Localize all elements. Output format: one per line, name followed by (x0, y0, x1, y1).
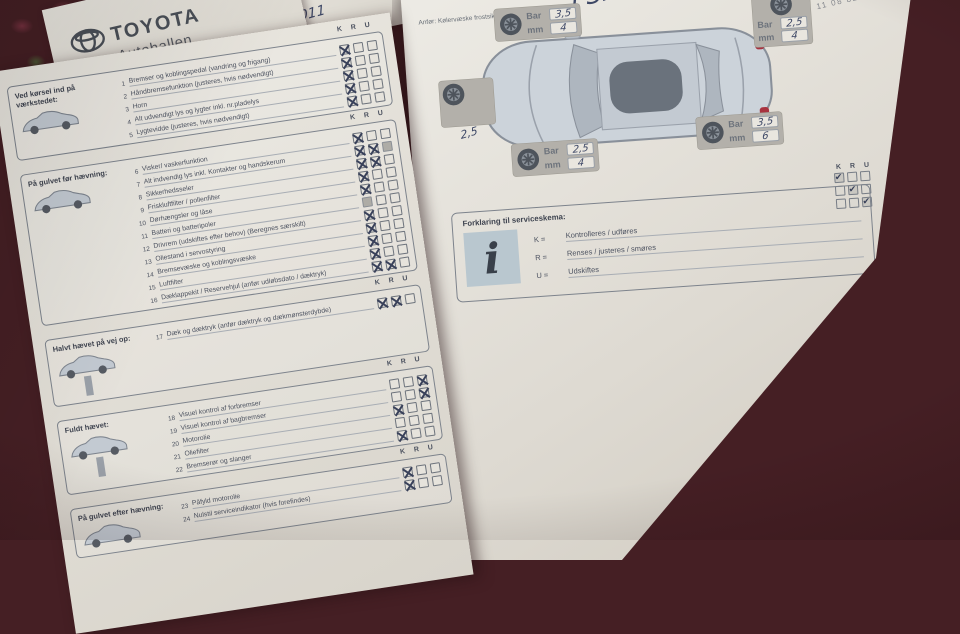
checkbox-k[interactable] (343, 70, 354, 81)
checkbox-u[interactable] (422, 413, 433, 424)
kru-column-label: K (831, 163, 845, 171)
checkbox-u[interactable] (395, 231, 406, 242)
checkbox-u[interactable] (419, 387, 430, 398)
checkbox-r[interactable] (407, 402, 418, 413)
checkbox-u[interactable] (404, 293, 415, 304)
checkbox-r[interactable] (370, 156, 381, 167)
checkbox-r[interactable] (409, 415, 420, 426)
checkbox-r[interactable] (360, 93, 371, 104)
checkbox-u[interactable] (432, 475, 443, 486)
bar-label: Bar (728, 118, 749, 129)
checkbox-r[interactable] (381, 233, 392, 244)
mm-value-field[interactable]: 4 (550, 21, 578, 35)
checkbox-r[interactable] (374, 181, 385, 192)
checkbox-k[interactable] (393, 404, 404, 415)
checkbox-u[interactable] (368, 53, 379, 64)
checkbox-k[interactable] (404, 480, 415, 491)
bar-value-field[interactable]: 2,5 (566, 142, 594, 156)
checkbox-k[interactable] (341, 57, 352, 68)
checkbox-k[interactable] (367, 235, 378, 246)
checkbox-k[interactable] (352, 132, 363, 143)
kru-column-label: U (373, 109, 388, 122)
checkbox-u[interactable] (387, 179, 398, 190)
item-number: 24 (175, 516, 191, 525)
tire-icon (515, 147, 541, 173)
kru-column-label: U (360, 21, 375, 34)
checkbox-k[interactable] (365, 222, 376, 233)
checkbox-u[interactable] (391, 205, 402, 216)
checkbox-u[interactable] (374, 91, 385, 102)
checkbox-k[interactable] (369, 248, 380, 259)
checkbox-r[interactable] (375, 194, 386, 205)
tirebox-top-right: Bar2,5 mm4 (751, 0, 813, 47)
checkbox-k[interactable] (347, 95, 358, 106)
checkbox-k[interactable] (339, 44, 350, 55)
checkbox-k[interactable] (356, 158, 367, 169)
checkbox-r[interactable] (383, 246, 394, 257)
checkbox-k[interactable] (391, 392, 402, 403)
checkbox-r[interactable] (366, 130, 377, 141)
tirebox-top-left: Bar3,5 mm4 (494, 4, 582, 42)
checkbox-r[interactable] (416, 465, 427, 476)
tire-icon (498, 12, 524, 38)
checkbox-k[interactable] (358, 171, 369, 182)
checkbox-u[interactable] (420, 400, 431, 411)
legend-key: U = (536, 269, 569, 280)
checkbox-r[interactable] (353, 42, 364, 53)
toyota-logo-icon (68, 25, 108, 56)
mm-value-field[interactable]: 4 (781, 29, 809, 43)
checkbox-u[interactable] (385, 166, 396, 177)
checkbox-u[interactable] (389, 192, 400, 203)
checkbox-r[interactable] (355, 55, 366, 66)
checkbox-u[interactable] (370, 66, 381, 77)
spare-wheel-box: 2,5 (439, 78, 496, 128)
bar-label: Bar (526, 10, 547, 21)
checkbox-k[interactable] (362, 196, 373, 207)
checkbox-u[interactable] (367, 40, 378, 51)
mm-label: mm (729, 132, 750, 143)
item-number: 16 (142, 297, 158, 306)
mm-label: mm (758, 32, 779, 43)
tire-icon (441, 80, 493, 123)
checkbox-r[interactable] (358, 80, 369, 91)
bar-value-field[interactable]: 2,5 (780, 16, 808, 30)
checkbox-u[interactable] (393, 218, 404, 229)
checkbox-r[interactable] (377, 207, 388, 218)
kru-column-label: U (423, 444, 438, 457)
checkbox-u[interactable] (382, 141, 393, 152)
service-checklist-page: KRUVed kørsel ind på værkstedet:1Bremser… (0, 13, 474, 634)
checkbox-r[interactable] (357, 68, 368, 79)
checkbox-r[interactable] (368, 143, 379, 154)
checkbox-u[interactable] (384, 154, 395, 165)
item-number: 22 (168, 467, 184, 476)
kru-column-label: U (410, 356, 425, 369)
spare-value[interactable]: 2,5 (460, 124, 479, 142)
checkbox-k[interactable] (402, 467, 413, 478)
checkbox-k[interactable] (389, 379, 400, 390)
checkbox-r[interactable] (379, 220, 390, 231)
checkbox-k[interactable] (364, 209, 375, 220)
checkbox-u[interactable] (417, 375, 428, 386)
form-number-stamp: 11 08 82 (816, 0, 859, 11)
bar-label: Bar (543, 145, 564, 156)
tirebox-bottom-left: Bar2,5 mm4 (511, 139, 599, 177)
service-schema-page: Anfør: Kølervæske frostsikring, ... PSI … (392, 0, 960, 560)
kru-column-label: U (859, 161, 873, 169)
left-page-sections: KRUVed kørsel ind på værkstedet:1Bremser… (5, 20, 453, 559)
checkbox-k[interactable] (371, 261, 382, 272)
checkbox-r[interactable] (403, 377, 414, 388)
checkbox-r[interactable] (405, 389, 416, 400)
checkbox-u[interactable] (424, 426, 435, 437)
checkbox-r[interactable] (385, 258, 396, 269)
mm-value-field[interactable]: 4 (567, 156, 595, 170)
checkbox-r[interactable] (391, 295, 402, 306)
checkbox-u[interactable] (397, 244, 408, 255)
mm-value-field[interactable]: 6 (752, 129, 780, 143)
bar-value-field[interactable]: 3,5 (549, 7, 577, 21)
tire-icon (700, 120, 726, 146)
item-number: 5 (118, 132, 134, 141)
tire-icon (768, 0, 794, 17)
kru-column-label: R (845, 162, 859, 170)
checkbox-u[interactable] (399, 256, 410, 267)
check-cell[interactable] (846, 171, 857, 182)
checkbox-k[interactable] (360, 183, 371, 194)
checkbox-r[interactable] (410, 428, 421, 439)
check-cell[interactable] (833, 172, 844, 183)
checkbox-k[interactable] (354, 145, 365, 156)
mm-label: mm (544, 159, 565, 170)
check-cell[interactable] (859, 170, 870, 181)
checkbox-u[interactable] (372, 78, 383, 89)
tirebox-bottom-right: Bar3,5 mm6 (696, 112, 784, 150)
checkbox-k[interactable] (397, 430, 408, 441)
checkbox-r[interactable] (372, 168, 383, 179)
legend-box: Forklaring til serviceskema: i K =Kontro… (451, 184, 876, 303)
bar-value-field[interactable]: 3,5 (751, 115, 779, 129)
checkbox-u[interactable] (430, 463, 441, 474)
kru-column-label: U (398, 274, 413, 287)
info-icon: i (463, 229, 521, 287)
checkbox-k[interactable] (345, 83, 356, 94)
mm-label: mm (527, 24, 548, 35)
item-number: 17 (148, 334, 164, 343)
checkbox-k[interactable] (377, 297, 388, 308)
checkbox-r[interactable] (418, 478, 429, 489)
checkbox-k[interactable] (395, 417, 406, 428)
bar-label: Bar (757, 19, 778, 30)
checkbox-u[interactable] (380, 128, 391, 139)
